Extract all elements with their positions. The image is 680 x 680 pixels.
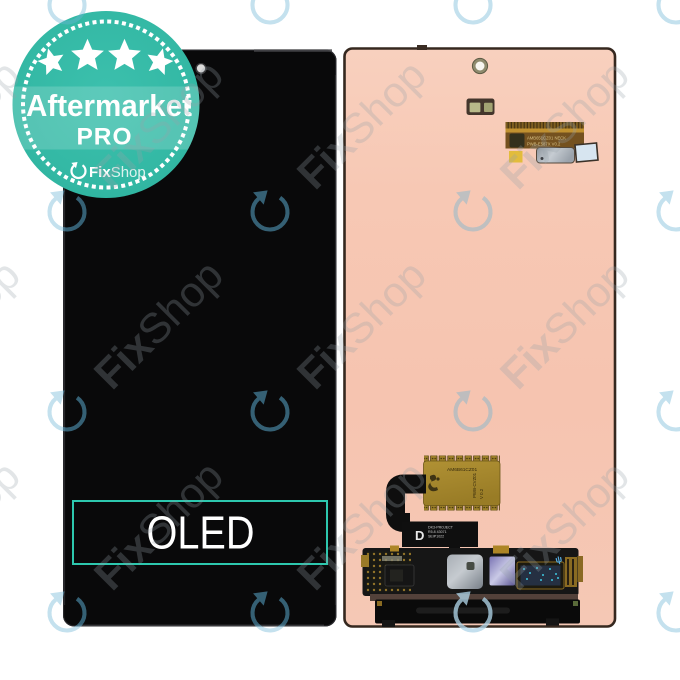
svg-text:SEIP1022: SEIP1022 (428, 535, 444, 539)
svg-text:PWB-CVZ01: PWB-CVZ01 (472, 472, 477, 498)
svg-text:AM6B61CZ01: AM6B61CZ01 (447, 467, 477, 473)
svg-text:R5.8 43071: R5.8 43071 (428, 530, 447, 534)
svg-text:DK3-PROJECT: DK3-PROJECT (428, 526, 454, 530)
svg-text:D: D (415, 528, 424, 543)
svg-text:V 0.2: V 0.2 (479, 488, 484, 499)
